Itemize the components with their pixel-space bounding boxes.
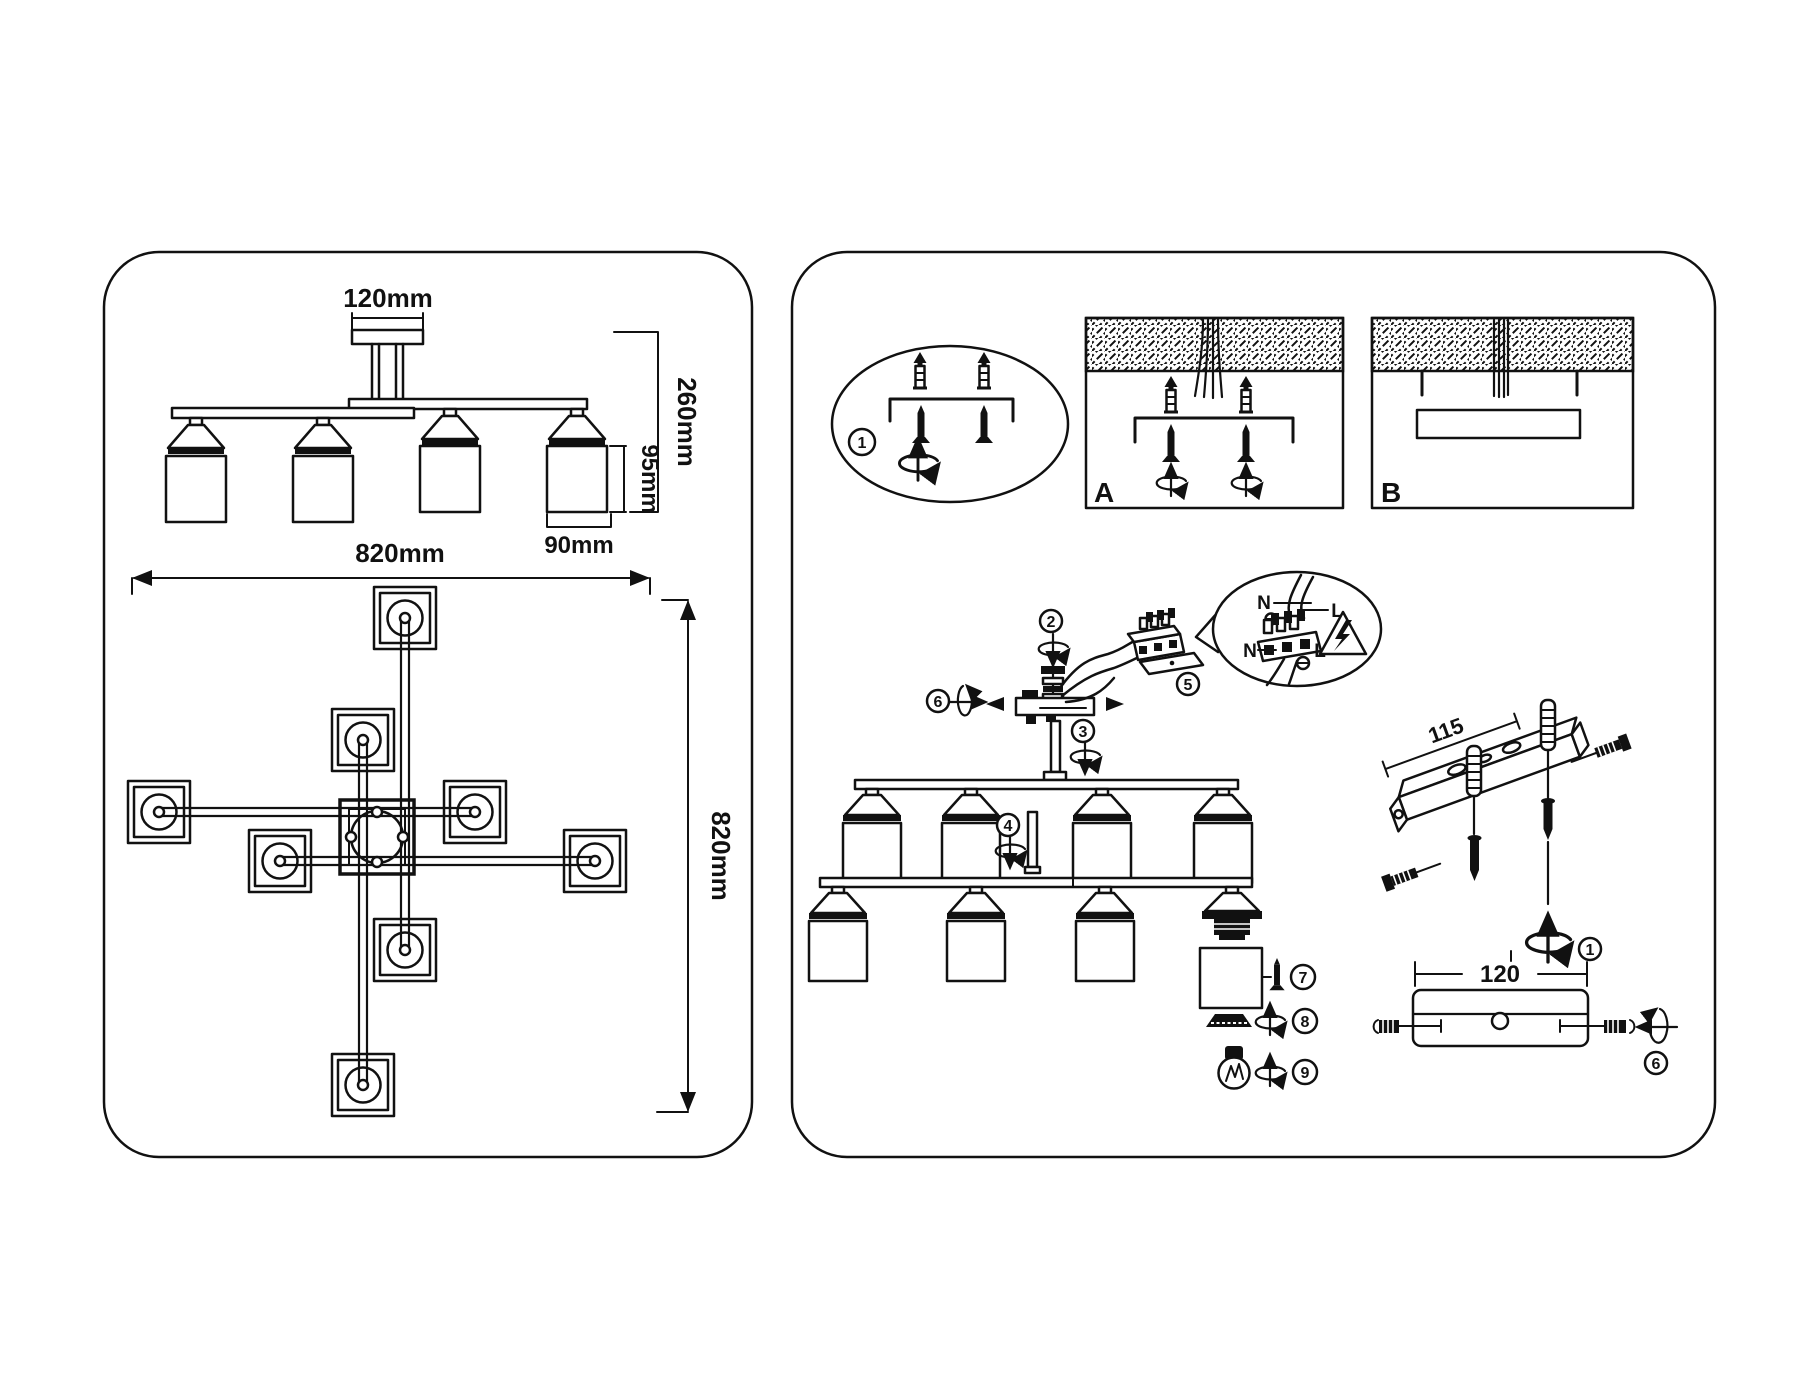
svg-text:9: 9	[1301, 1065, 1310, 1082]
svg-text:5: 5	[1184, 677, 1193, 694]
canopy-width-dimension: 120mm	[343, 283, 433, 313]
shade-width-dimension: 90mm	[544, 532, 613, 559]
step-3-marker: 3	[1072, 720, 1094, 742]
svg-text:2: 2	[1047, 614, 1056, 631]
step-9-marker: 9	[1293, 1060, 1317, 1084]
step-2-marker: 2	[1040, 610, 1062, 632]
ceiling-hatch	[1372, 318, 1633, 371]
ceiling-hatch	[1086, 318, 1343, 371]
step-4-marker: 4	[997, 814, 1019, 836]
svg-text:4: 4	[1004, 818, 1013, 835]
tier2-bar	[820, 878, 1252, 887]
top-view-width-dimension: 820mm	[355, 538, 445, 568]
step-7-marker: 7	[1291, 965, 1315, 989]
center-stem-rod	[1051, 721, 1060, 772]
step-5-marker: 5	[1177, 673, 1199, 695]
step-1-bubble: 1	[832, 346, 1068, 502]
option-a-label: A	[1094, 477, 1114, 508]
svg-text:1: 1	[1586, 942, 1595, 959]
svg-text:7: 7	[1299, 970, 1308, 987]
installation-manual-page: 120mm	[0, 0, 1800, 1400]
svg-text:3: 3	[1079, 724, 1088, 741]
mount-option-b: B	[1372, 318, 1633, 508]
instructions-panel: 1 A B	[792, 252, 1715, 1157]
neutral-label-bottom: N	[1243, 641, 1257, 662]
canopy-mounted	[1417, 410, 1580, 438]
neutral-label-top: N	[1257, 593, 1271, 614]
overall-height-dimension: 260mm	[672, 377, 702, 467]
tier-connector-rod	[1028, 812, 1037, 867]
bracket-step-marker: 1	[1579, 938, 1601, 960]
svg-text:8: 8	[1301, 1014, 1310, 1031]
option-b-label: B	[1381, 477, 1401, 508]
canopy-width-dimension: 120	[1480, 961, 1520, 988]
wall-anchor-large	[1467, 746, 1481, 796]
svg-text:6: 6	[1652, 1056, 1661, 1073]
canopy-step-marker: 6	[1645, 1052, 1667, 1074]
left-panel-border	[104, 252, 752, 1157]
canopy-side	[352, 330, 423, 344]
threaded-nipple	[1041, 662, 1065, 700]
rod-cap	[1025, 867, 1040, 873]
bubble-outline	[832, 346, 1068, 502]
tier1-bar	[855, 780, 1238, 789]
wall-anchor-large	[1541, 700, 1555, 750]
top-view-depth-dimension: 820mm	[706, 811, 736, 901]
mount-option-a: A	[1086, 318, 1343, 508]
dimensions-panel: 120mm	[104, 252, 752, 1157]
step-6-marker: 6	[927, 690, 949, 712]
svg-text:1: 1	[858, 435, 867, 452]
arm-bar-left	[172, 408, 414, 418]
canopy-hole	[1492, 1013, 1508, 1029]
step-8-marker: 8	[1293, 1009, 1317, 1033]
svg-text:6: 6	[934, 694, 943, 711]
step-1-marker: 1	[849, 429, 875, 455]
